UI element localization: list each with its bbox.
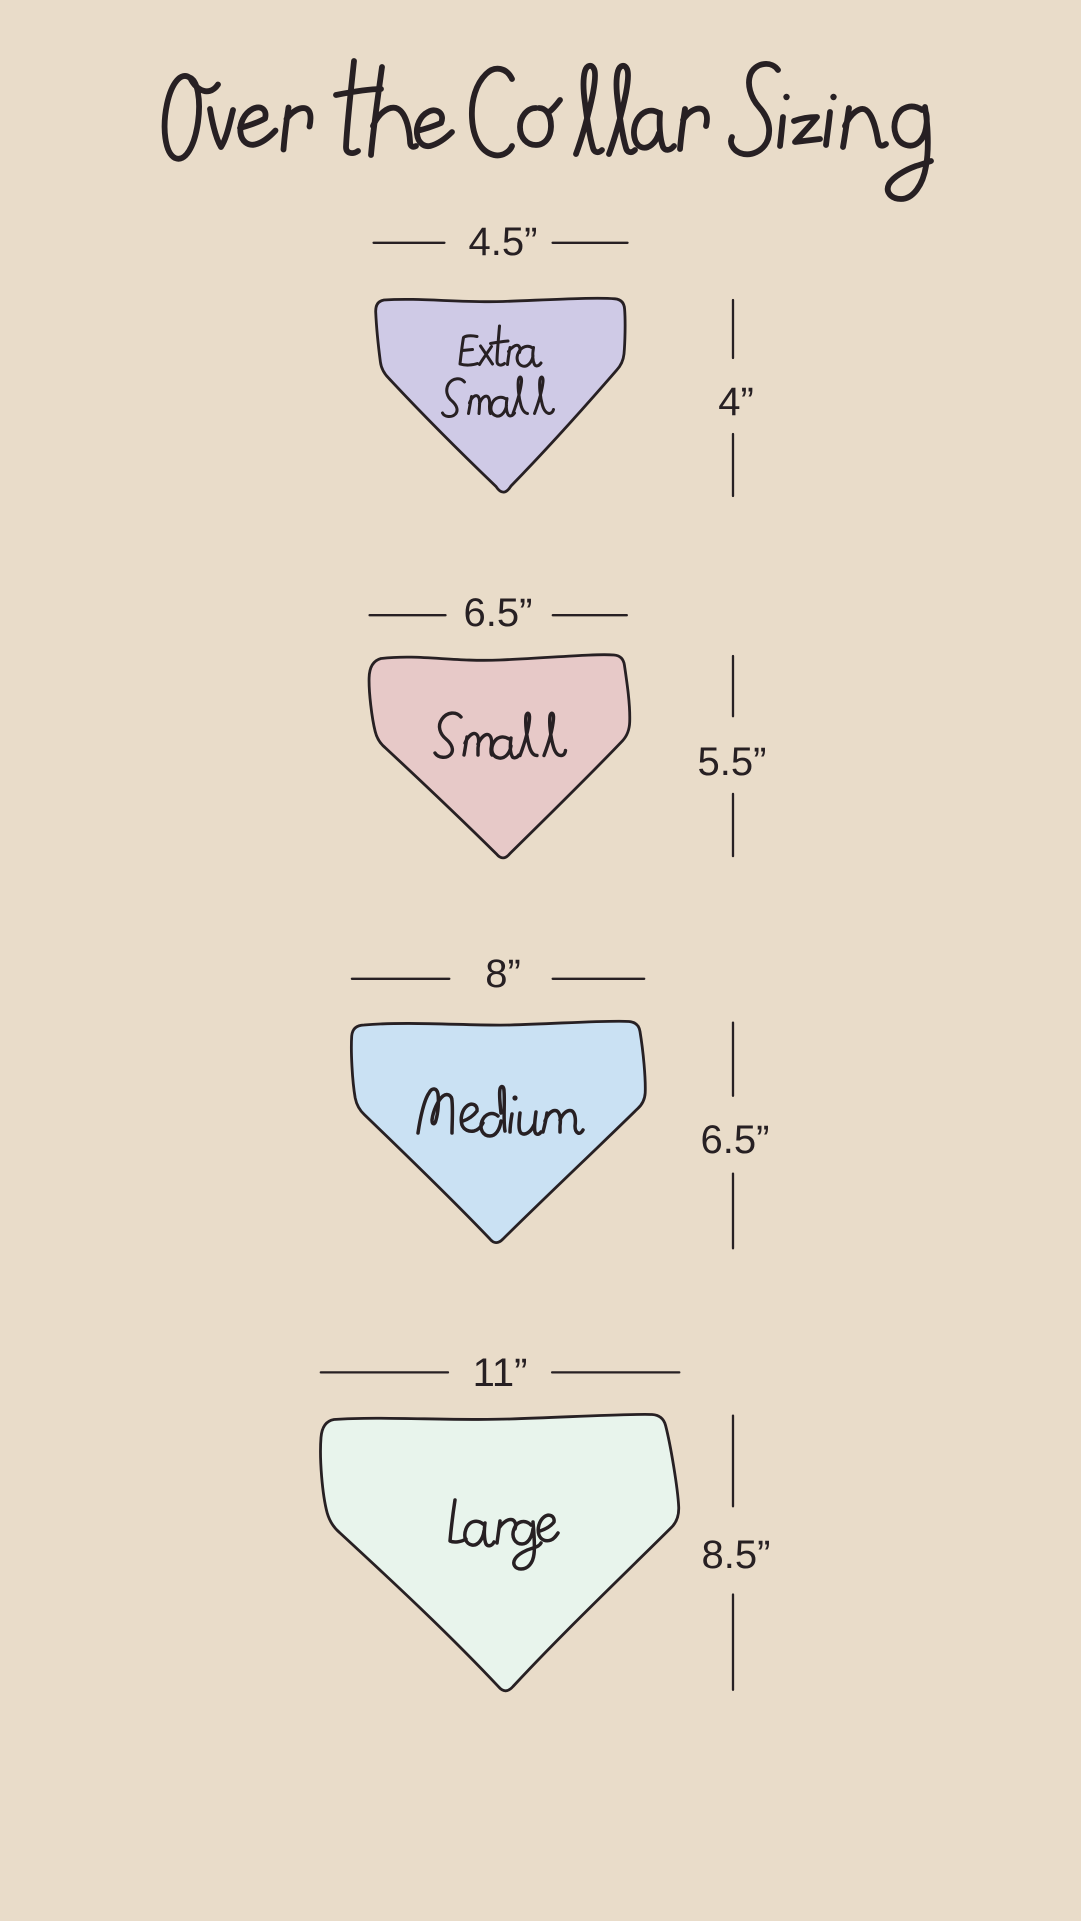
svg-text:6.5”: 6.5” <box>701 1118 770 1162</box>
svg-text:4”: 4” <box>718 380 754 424</box>
svg-text:8”: 8” <box>485 952 521 996</box>
svg-text:4.5”: 4.5” <box>469 220 538 264</box>
svg-text:8.5”: 8.5” <box>702 1533 771 1577</box>
svg-text:6.5”: 6.5” <box>464 591 533 635</box>
svg-text:5.5”: 5.5” <box>698 740 767 784</box>
svg-text:11”: 11” <box>473 1351 528 1395</box>
